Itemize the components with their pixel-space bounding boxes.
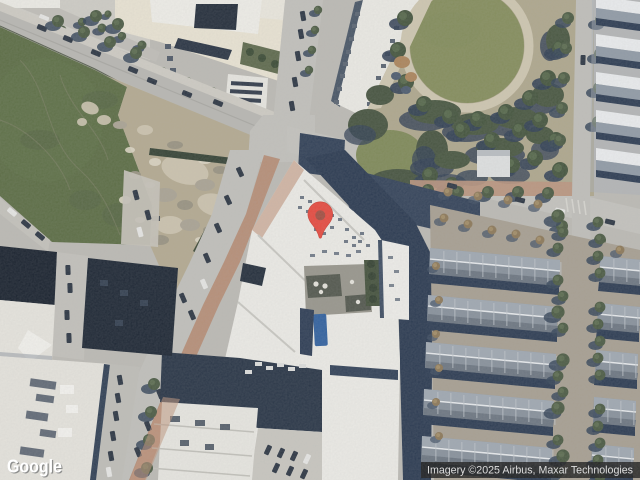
svg-text:Google: Google: [7, 457, 62, 477]
